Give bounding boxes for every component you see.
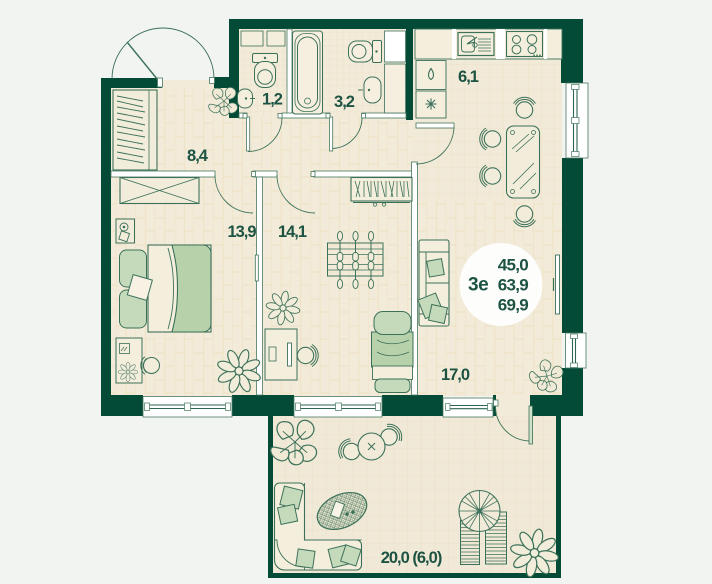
svg-text:13,9: 13,9 <box>227 223 256 241</box>
svg-text:69,9: 69,9 <box>498 296 529 315</box>
svg-text:8,4: 8,4 <box>187 147 209 165</box>
svg-text:45,0: 45,0 <box>498 256 529 275</box>
svg-text:14,1: 14,1 <box>278 223 307 241</box>
svg-text:20,0 (6,0): 20,0 (6,0) <box>381 549 442 567</box>
svg-text:63,9: 63,9 <box>498 276 529 295</box>
svg-text:3,2: 3,2 <box>334 93 355 111</box>
svg-text:17,0: 17,0 <box>441 366 470 384</box>
svg-text:1,2: 1,2 <box>262 91 283 109</box>
svg-text:6,1: 6,1 <box>458 68 479 86</box>
svg-text:3е: 3е <box>468 275 488 296</box>
